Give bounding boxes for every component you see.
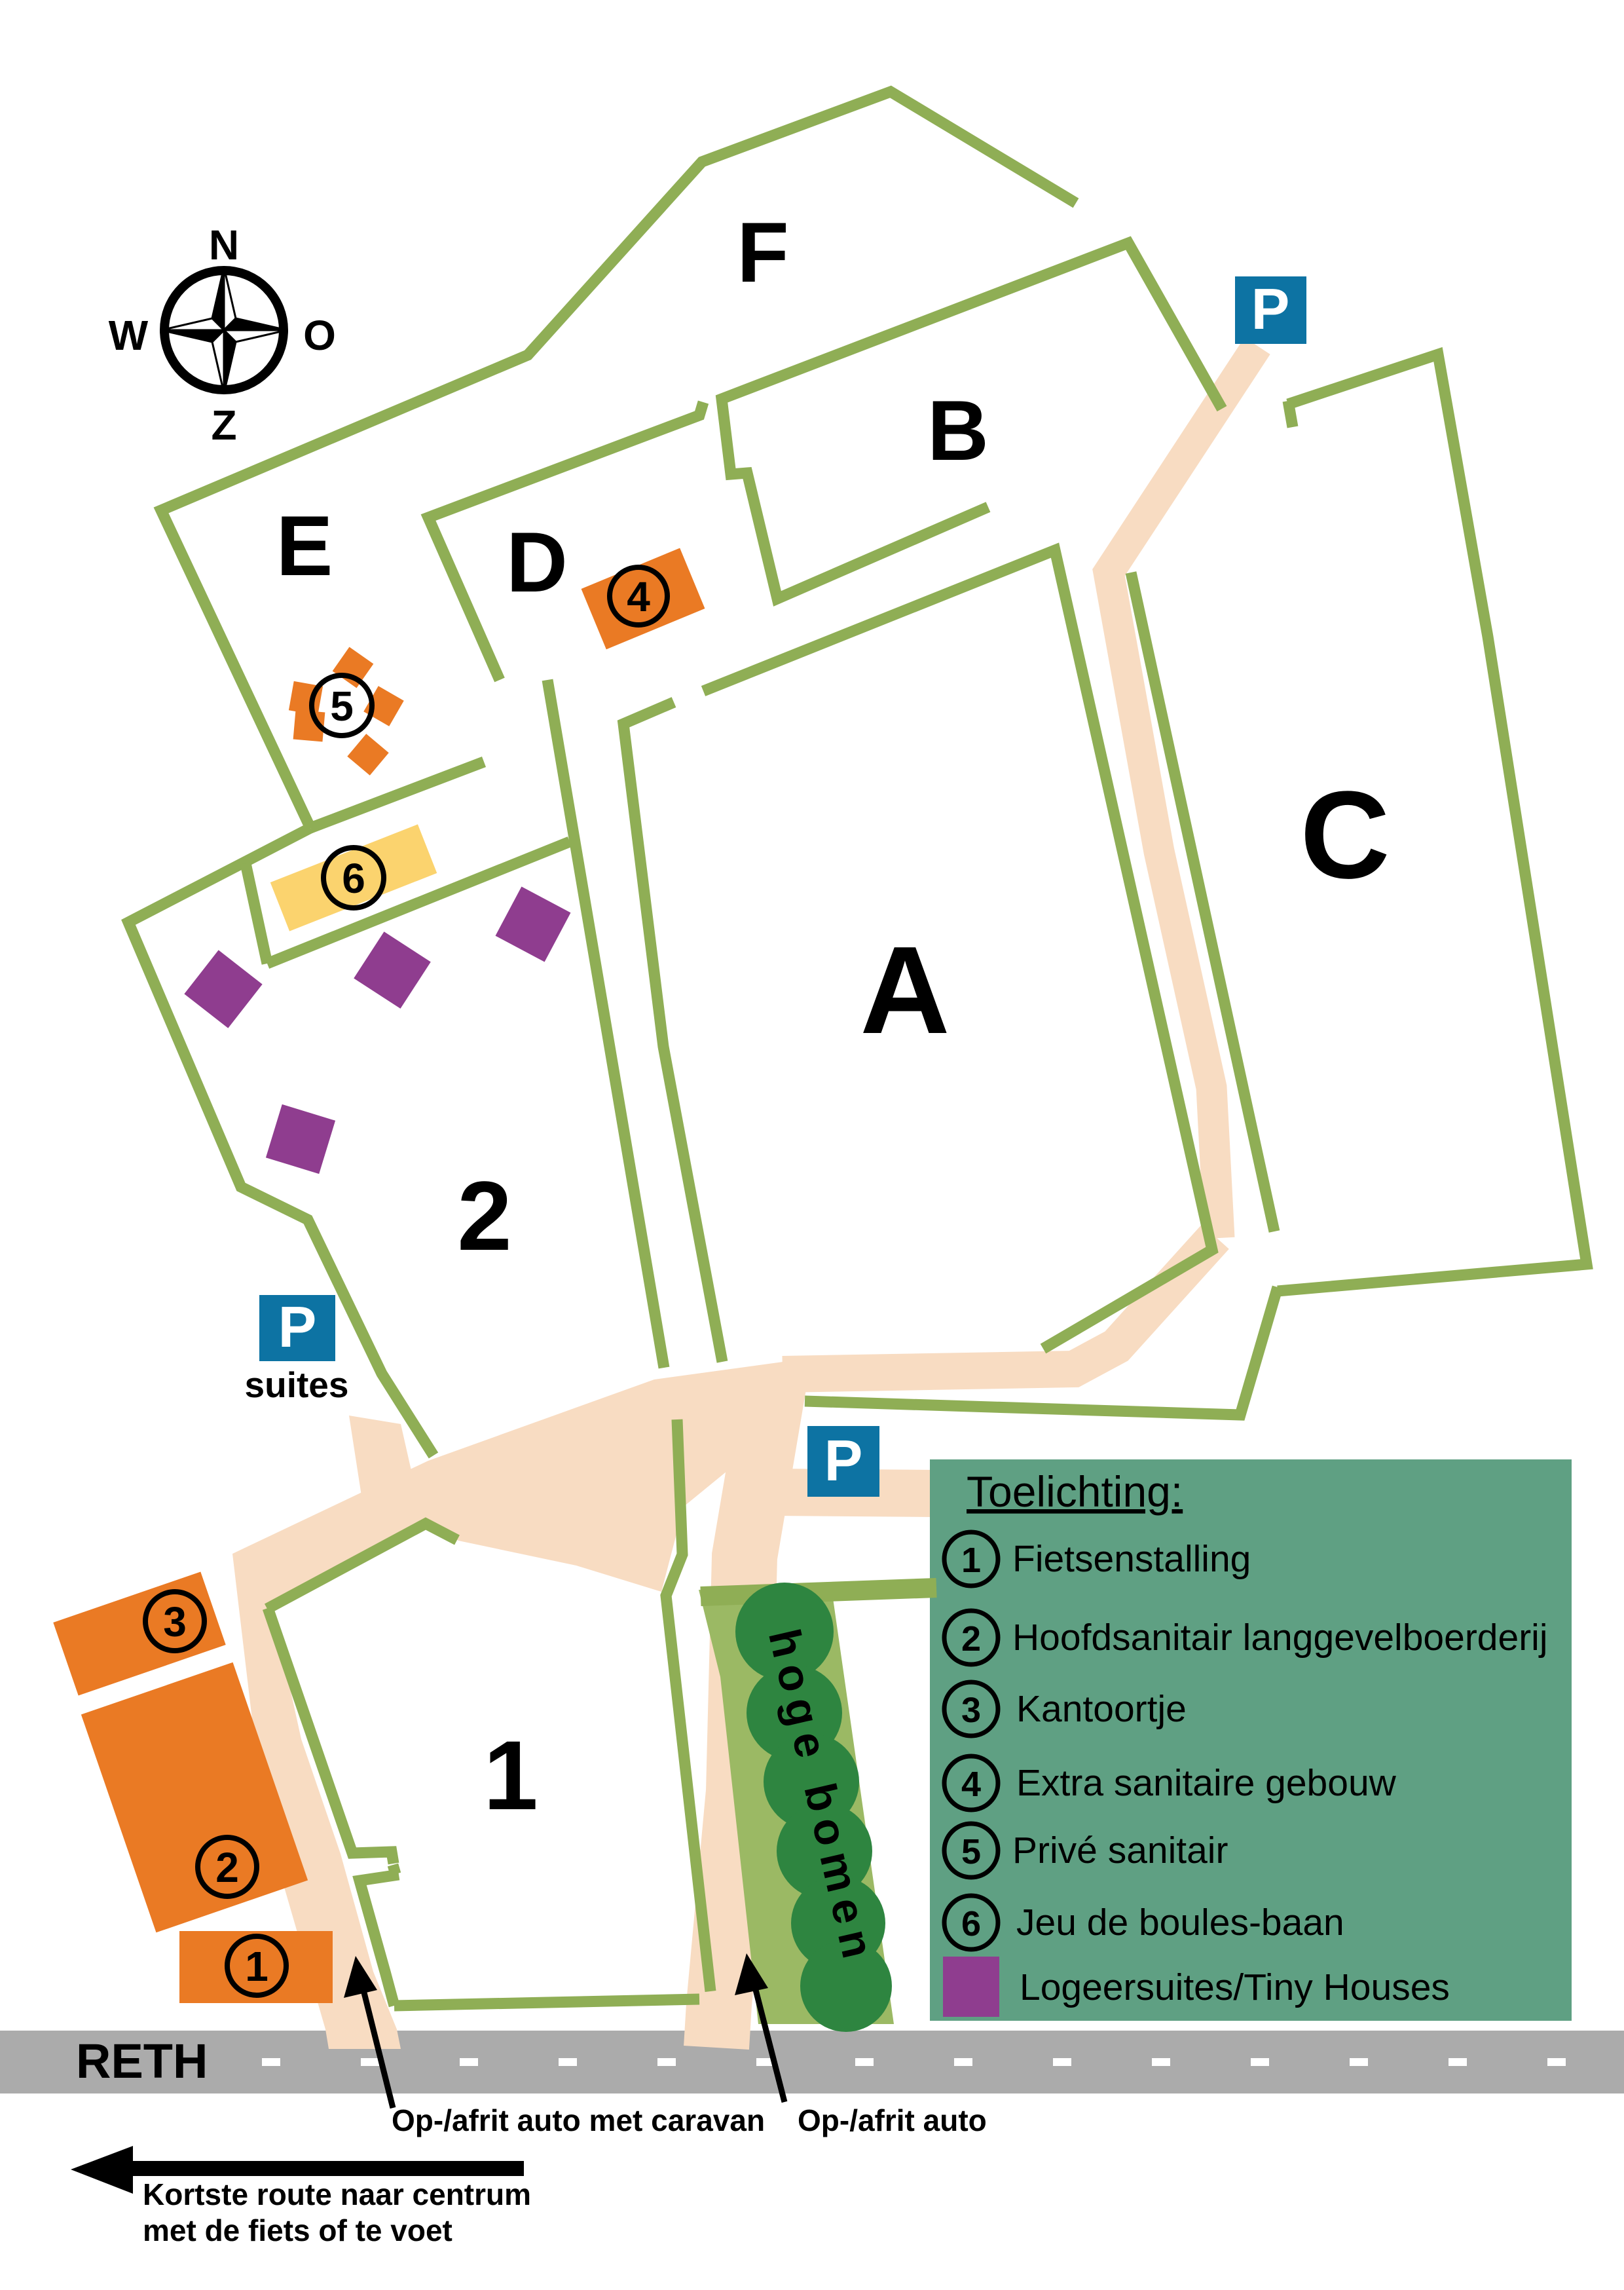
svg-text:suites: suites	[245, 1364, 349, 1405]
svg-text:O: O	[303, 312, 336, 359]
svg-text:2: 2	[961, 1619, 981, 1659]
svg-text:2: 2	[457, 1161, 511, 1271]
svg-text:5: 5	[330, 683, 354, 730]
svg-text:P: P	[1251, 276, 1290, 341]
svg-text:W: W	[109, 312, 149, 359]
svg-text:A: A	[860, 921, 950, 1060]
svg-text:Logeersuites/Tiny Houses: Logeersuites/Tiny Houses	[1020, 1966, 1450, 2008]
svg-text:6: 6	[961, 1904, 981, 1943]
svg-text:Kantoortje: Kantoortje	[1016, 1688, 1187, 1730]
svg-text:2: 2	[215, 1844, 239, 1891]
svg-text:6: 6	[342, 855, 365, 902]
svg-text:P: P	[824, 1428, 863, 1493]
svg-text:met de fiets of te voet: met de fiets of te voet	[143, 2213, 452, 2247]
svg-text:1: 1	[245, 1943, 268, 1990]
svg-text:Op-/afrit auto: Op-/afrit auto	[798, 2103, 987, 2137]
svg-text:1: 1	[961, 1541, 981, 1580]
svg-text:B: B	[927, 383, 989, 478]
svg-text:Op-/afrit auto met caravan: Op-/afrit auto met caravan	[392, 2103, 765, 2137]
svg-text:Kortste route naar centrum: Kortste route naar centrum	[143, 2177, 531, 2211]
svg-text:1: 1	[483, 1720, 538, 1830]
svg-text:Privé sanitair: Privé sanitair	[1012, 1830, 1228, 1871]
svg-text:3: 3	[163, 1598, 187, 1645]
svg-text:Z: Z	[211, 402, 236, 449]
svg-text:Toelichting:: Toelichting:	[967, 1467, 1183, 1516]
svg-text:E: E	[276, 498, 333, 593]
svg-text:3: 3	[961, 1691, 981, 1730]
svg-text:RETH: RETH	[76, 2034, 208, 2088]
svg-text:Extra sanitaire gebouw: Extra sanitaire gebouw	[1016, 1762, 1397, 1804]
svg-text:5: 5	[961, 1832, 981, 1871]
svg-text:Hoofdsanitair langgevelboerder: Hoofdsanitair langgevelboerderij	[1012, 1617, 1548, 1659]
svg-text:N: N	[209, 221, 239, 269]
svg-text:Jeu de boules-baan: Jeu de boules-baan	[1016, 1902, 1344, 1943]
svg-text:C: C	[1300, 766, 1390, 905]
svg-text:F: F	[737, 204, 788, 300]
svg-text:Fietsenstalling: Fietsenstalling	[1012, 1538, 1251, 1580]
svg-text:4: 4	[961, 1765, 981, 1804]
svg-text:D: D	[506, 514, 568, 610]
svg-text:4: 4	[627, 573, 650, 620]
svg-text:P: P	[278, 1294, 317, 1359]
